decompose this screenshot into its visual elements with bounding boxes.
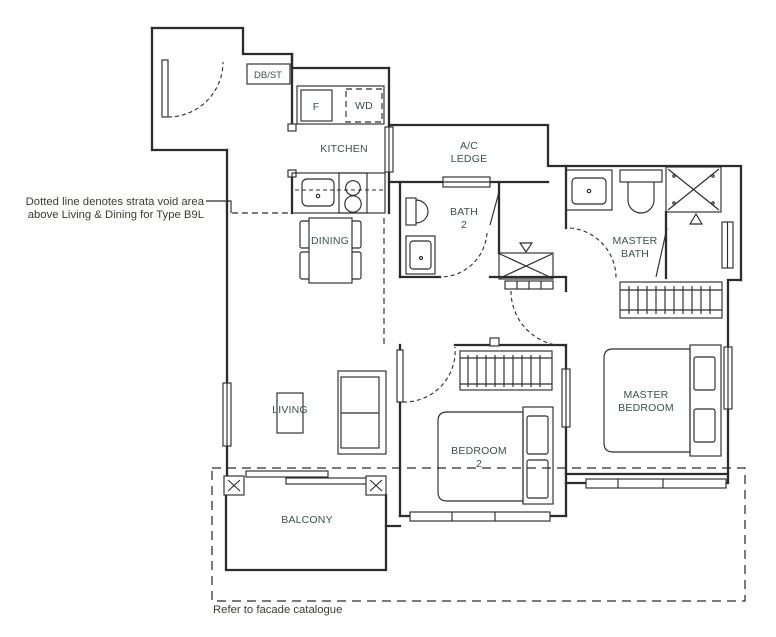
balcony-elements <box>224 471 386 495</box>
master-wardrobe <box>620 282 722 318</box>
mbath-shower-cross <box>668 169 719 210</box>
bath2-basin <box>410 241 431 269</box>
facade-note: Refer to facade catalogue <box>213 604 342 616</box>
dining-table <box>309 218 352 283</box>
room-labels: DB/ST F WD KITCHEN A/C LEDGE BATH 2 MAST… <box>254 70 674 526</box>
master-bath-label-2: BATH <box>621 248 649 260</box>
shaft-arrow-marker <box>520 243 532 252</box>
jamb-corridor-end <box>490 338 499 346</box>
cooker-hob <box>339 173 367 213</box>
jamb-kitchen-opening-top <box>288 124 296 131</box>
mbath-arrow-marker <box>690 214 702 224</box>
bath2-door-leaf <box>490 192 499 225</box>
floor-plan-drawing: DB/ST F WD KITCHEN A/C LEDGE BATH 2 MAST… <box>0 0 776 637</box>
balcony-label: BALCONY <box>281 514 333 526</box>
kitchen-label: KITCHEN <box>320 143 368 155</box>
bedroom2-door-leaf <box>397 350 403 402</box>
master-bedroom-label-1: MASTER <box>624 389 669 401</box>
sliding-door-panel-2 <box>286 478 368 484</box>
bedroom2-pillow-1 <box>527 416 548 454</box>
mbath-toilet-cistern <box>620 170 662 182</box>
kitchen-fixtures <box>247 64 385 213</box>
entry-door-leaf <box>162 60 168 117</box>
bath2-toilet-bowl <box>416 200 428 223</box>
strata-void-note-line-2: above Living & Dining for Type B9L <box>28 209 204 221</box>
shaft-cross <box>500 254 552 278</box>
bedroom2-wardrobe-hatch <box>468 355 540 387</box>
bedroom2-door-swing <box>403 347 455 402</box>
doors <box>162 60 667 402</box>
washer-dryer-label: WD <box>355 100 373 112</box>
kitchen-sink-icon <box>302 179 334 206</box>
wall-balcony <box>226 495 386 570</box>
entry-door-swing <box>168 62 223 117</box>
bath2-label-1: BATH <box>450 206 478 218</box>
master-bath-door-swing <box>570 228 616 278</box>
window-bedroom2-south <box>410 512 550 521</box>
master-bed-pillow-1 <box>694 357 715 390</box>
bath2-label-2: 2 <box>461 219 467 231</box>
mbath-toilet-bowl <box>628 182 654 213</box>
dining-label: DINING <box>311 235 349 247</box>
bath2-toilet-cistern <box>406 198 416 225</box>
bedroom2-label-2: 2 <box>476 458 482 470</box>
sink-drain-dot <box>316 194 319 197</box>
bedroom2-label-1: BEDROOM <box>451 445 507 457</box>
bedroom2-pillow-2 <box>527 460 548 498</box>
wall-top-left-outline <box>152 28 389 68</box>
floor-plan-page: DB/ST F WD KITCHEN A/C LEDGE BATH 2 MAST… <box>0 0 776 637</box>
strata-void-note-line-1: Dotted line denotes strata void area <box>26 196 205 208</box>
living-dining-furniture <box>277 218 386 454</box>
hob-burner-2 <box>345 196 361 212</box>
mbath-basin-dot <box>587 189 590 192</box>
master-bed-pillow-2 <box>694 409 715 442</box>
fridge-label: F <box>313 101 320 113</box>
master-bedroom-door-swing <box>511 291 566 346</box>
master-bedroom-label-2: BEDROOM <box>618 402 674 414</box>
master-bath-fixtures <box>566 167 721 224</box>
master-bath-label-1: MASTER <box>613 235 658 247</box>
wardrobes <box>460 282 722 390</box>
bath2-fixtures <box>406 198 553 289</box>
master-bed-frame <box>690 345 721 456</box>
living-label: LIVING <box>272 404 308 416</box>
sliding-door-panel-1 <box>246 471 328 477</box>
bath2-door-swing <box>441 233 487 277</box>
ac-ledge-label-1: A/C <box>460 140 478 152</box>
hob-burner-1 <box>346 181 361 196</box>
ac-ledge-label-2: LEDGE <box>451 153 488 165</box>
bath2-basin-dot <box>420 257 423 260</box>
window-master-south <box>586 479 726 488</box>
db-st-label: DB/ST <box>254 70 282 81</box>
